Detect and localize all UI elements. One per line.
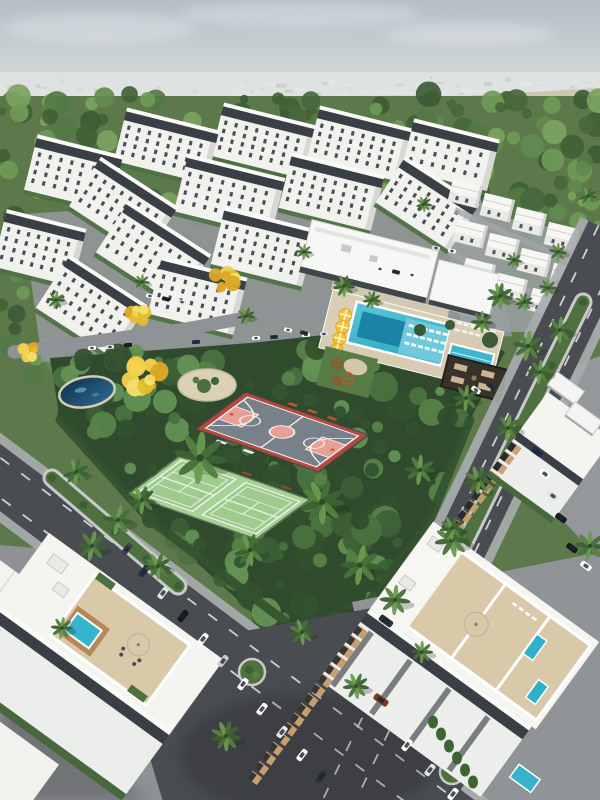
aerial-community-render: [0, 0, 600, 800]
parked-car: [124, 343, 132, 348]
parked-car: [88, 346, 96, 351]
parked-car: [106, 345, 114, 350]
sand-circle: [178, 369, 236, 401]
parked-car: [270, 335, 278, 340]
parked-car: [252, 336, 260, 341]
parked-car: [192, 340, 200, 345]
parked-car: [320, 332, 328, 337]
scene-canvas: [0, 0, 600, 800]
